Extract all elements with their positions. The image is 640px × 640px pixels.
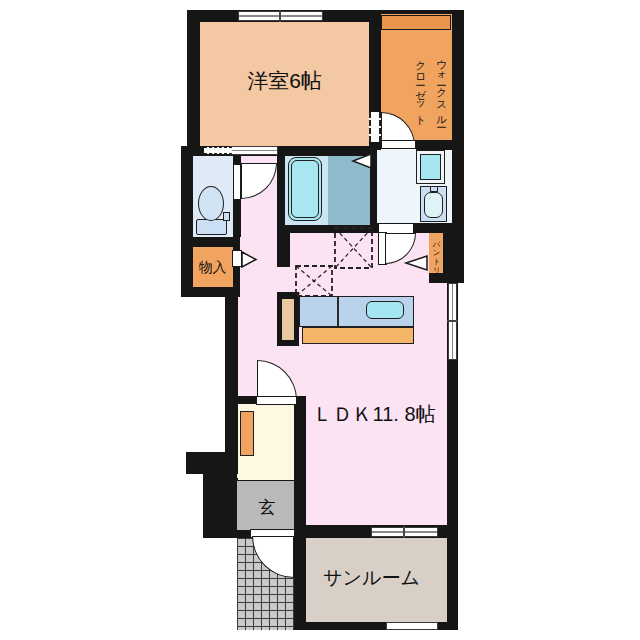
ldk-label: ＬＤＫ11. 8帖 (294, 401, 454, 428)
floor-plan: 洋室6帖 ウォークスルー クローゼット 物入 パントリー ＬＤＫ11. 8帖 玄… (0, 0, 640, 640)
sunroom-label: サンルーム (306, 565, 437, 591)
pantry-label: パントリー (429, 234, 443, 273)
walk-through-closet-label: ウォークスルー クローゼット (402, 31, 452, 143)
western-room-label: 洋室6帖 (200, 67, 369, 95)
bathroom-folding-door-marker (353, 154, 371, 168)
entrance-label: 玄 (250, 496, 284, 519)
storage-label: 物入 (192, 259, 233, 277)
storage-door-arrow (242, 252, 256, 267)
pantry-opening-arrow (406, 256, 427, 270)
refrigerator-space-dashed (335, 228, 372, 268)
cupboard-space-dashed (296, 266, 332, 296)
markers-overlay (0, 0, 640, 640)
